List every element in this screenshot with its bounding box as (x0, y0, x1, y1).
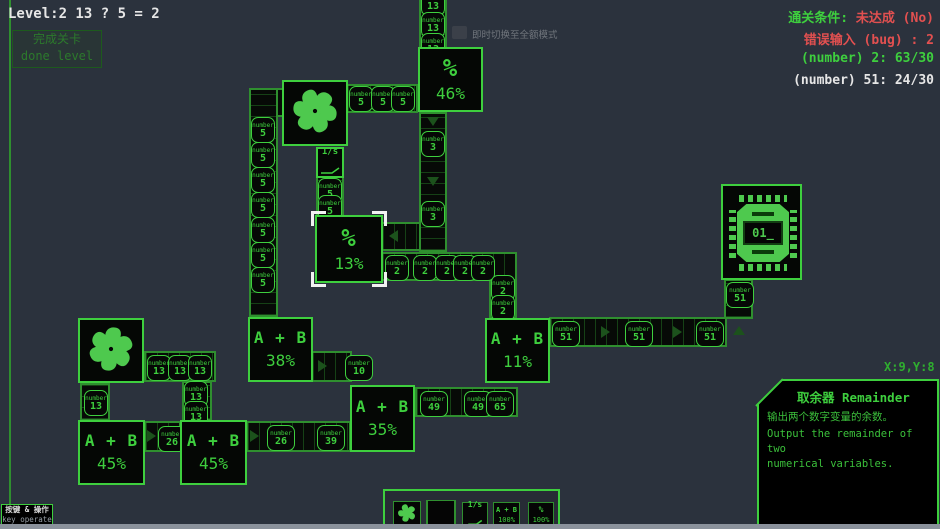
token-number: number51 (625, 321, 653, 347)
adder-symbol: A + B (85, 433, 138, 449)
token-value: 5 (400, 98, 406, 108)
token-value: 13 (174, 367, 186, 377)
modulo-symbol: % (443, 57, 458, 79)
token-value: 2 (444, 267, 450, 277)
token-number: number10 (345, 355, 373, 381)
panel-desc-en-2: numerical variables. (767, 457, 929, 472)
modulo-symbol: % (539, 505, 544, 514)
adder-symbol: A + B (491, 331, 544, 347)
token-value: 51 (560, 333, 572, 343)
panel-desc-zh: 输出两个数字变量的余数。 (767, 410, 929, 425)
token-value: 3 (430, 143, 436, 153)
token-value: 13 (90, 402, 102, 412)
efficiency-percent: 38% (266, 353, 295, 369)
token-number: number13 (188, 355, 212, 381)
selection-corner-icon (311, 272, 326, 287)
token-value: 2 (480, 267, 486, 277)
chip-pins-left (729, 210, 736, 258)
key-hint-icon (452, 26, 467, 39)
adder-machine-11[interactable]: A + B 11% (485, 318, 550, 383)
adder-machine-45a[interactable]: A + B 45% (78, 420, 145, 485)
remainder-info-panel: 取余器 Remainder 输出两个数字变量的余数。 Output the re… (757, 379, 939, 529)
chip-pins-right (790, 210, 797, 258)
timer-label: 1/s (468, 500, 482, 509)
efficiency-percent: 46% (436, 86, 465, 102)
token-value: 5 (260, 154, 266, 164)
token-number: number5 (251, 167, 275, 193)
game-board: number13 number13 number13 number5 numbe… (0, 0, 940, 529)
token-value: 5 (380, 98, 386, 108)
chevron-right-icon (318, 360, 327, 372)
token-value: 5 (260, 279, 266, 289)
done-level-button[interactable]: 完成关卡 done level (12, 30, 102, 68)
chip-display: 01_ (743, 221, 783, 245)
token-value: 2 (462, 267, 468, 277)
chevron-down-icon (427, 117, 439, 126)
adder-symbol: A + B (254, 330, 307, 346)
chip-pins-bottom (739, 264, 787, 271)
cursor-coordinates: X:9,Y:8 (884, 360, 935, 374)
token-number: number3 (421, 201, 445, 227)
adder-machine-35[interactable]: A + B 35% (350, 385, 415, 452)
number2-progress-line: (number) 2: 63/30 (801, 51, 934, 66)
token-number: number2 (385, 255, 409, 281)
fan-generator[interactable] (78, 318, 144, 383)
efficiency-percent: 35% (368, 422, 397, 438)
token-value: 5 (358, 98, 364, 108)
token-number: number51 (696, 321, 724, 347)
token-value: 49 (472, 403, 484, 413)
token-number: number5 (251, 117, 275, 143)
token-value: 5 (260, 129, 266, 139)
selection-corner-icon (372, 211, 387, 226)
token-value: 2 (394, 267, 400, 277)
selection-corner-icon (311, 211, 326, 226)
timer-machine[interactable]: 1/s (316, 147, 344, 178)
token-value: 2 (422, 267, 428, 277)
modulo-machine-46[interactable]: % 46% (418, 47, 483, 112)
token-number: number39 (317, 425, 345, 451)
chip-slot-top (752, 212, 774, 216)
chevron-right-icon (250, 430, 259, 442)
goal-label: 通关条件: (788, 11, 848, 26)
mode-tooltip: 即时切换至全额模式 (472, 27, 558, 41)
adder-cost: 100% (498, 516, 515, 524)
token-number: number13 (84, 390, 108, 416)
token-number: number5 (251, 142, 275, 168)
efficiency-percent: 11% (503, 354, 532, 370)
selection-corner-icon (372, 272, 387, 287)
token-value: 51 (734, 294, 746, 304)
token-value: 5 (260, 254, 266, 264)
goal-value: 未达成 (No) (856, 11, 934, 26)
adder-machine-38[interactable]: A + B 38% (248, 317, 313, 382)
adder-symbol: A + B (187, 433, 240, 449)
token-number: number5 (391, 86, 415, 112)
token-number: number49 (420, 391, 448, 417)
timer-ramp-icon (320, 159, 340, 178)
token-value: 5 (260, 204, 266, 214)
key-hint-en: key operate (2, 515, 52, 524)
token-value: 65 (494, 403, 506, 413)
token-value: 13 (153, 367, 165, 377)
token-value: 13 (427, 2, 439, 12)
token-value: 39 (325, 437, 337, 447)
token-number: number5 (251, 192, 275, 218)
build-toolbar: 1/s A + B 100% % 100% (383, 489, 560, 529)
chevron-right-icon (601, 326, 610, 338)
goal-status-line: 通关条件: 未达成 (No) (788, 7, 934, 26)
token-number: number5 (251, 242, 275, 268)
chevron-right-icon (147, 430, 156, 442)
token-value: 2 (500, 307, 506, 317)
left-border-line (9, 0, 11, 505)
cpu-chip-goal[interactable]: 01_ (721, 184, 802, 280)
adder-machine-45b[interactable]: A + B 45% (180, 420, 247, 485)
token-value: 13 (427, 24, 439, 34)
token-number: number51 (552, 321, 580, 347)
bug-count-line: 错误输入 (bug) : 2 (804, 29, 934, 48)
fan-generator[interactable] (282, 80, 348, 146)
timer-label: 1/s (322, 147, 338, 157)
token-value: 51 (704, 333, 716, 343)
token-number: number5 (349, 86, 373, 112)
token-number: number5 (251, 217, 275, 243)
fan-icon (288, 84, 342, 142)
adder-symbol: A + B (356, 399, 409, 415)
token-value: 13 (194, 367, 206, 377)
efficiency-percent: 13% (335, 256, 364, 272)
token-value: 3 (430, 213, 436, 223)
chevron-down-icon (427, 177, 439, 186)
token-value: 10 (353, 367, 365, 377)
panel-title: 取余器 Remainder (797, 387, 937, 406)
token-number: number65 (486, 391, 514, 417)
conveyor-lane[interactable] (381, 222, 421, 251)
chevron-left-icon (389, 230, 398, 242)
token-number: number2 (413, 255, 437, 281)
done-level-label-en: done level (13, 48, 101, 65)
efficiency-percent: 45% (199, 456, 228, 472)
modulo-cost: 100% (533, 516, 550, 524)
token-value: 51 (633, 333, 645, 343)
chip-icon: 01_ (723, 186, 800, 278)
token-number: number26 (267, 425, 295, 451)
adder-symbol: A + B (496, 506, 517, 514)
token-value: 5 (260, 179, 266, 189)
chip-slot-bottom (752, 250, 774, 254)
token-number: number51 (726, 282, 754, 308)
chip-pins-top (739, 195, 787, 202)
bottom-edge-strip (0, 524, 940, 529)
efficiency-percent: 45% (97, 456, 126, 472)
chevron-right-icon (673, 326, 682, 338)
modulo-symbol: % (341, 227, 356, 249)
panel-desc-en-1: Output the remainder of two (767, 427, 929, 457)
key-hint-zh: 按键 & 操作 (2, 505, 52, 515)
token-number: number5 (251, 267, 275, 293)
token-value: 26 (275, 437, 287, 447)
token-number: number3 (421, 131, 445, 157)
number51-progress-line: (number) 51: 24/30 (793, 73, 934, 88)
toolbar-slot-timer[interactable]: 1/s (462, 502, 488, 526)
token-value: 5 (260, 229, 266, 239)
fan-icon (84, 322, 138, 380)
done-level-label-zh: 完成关卡 (13, 31, 101, 48)
token-value: 26 (166, 438, 178, 448)
token-value: 49 (428, 403, 440, 413)
level-equation: Level:2 13 ? 5 = 2 (8, 6, 160, 22)
chevron-up-icon (733, 326, 745, 335)
